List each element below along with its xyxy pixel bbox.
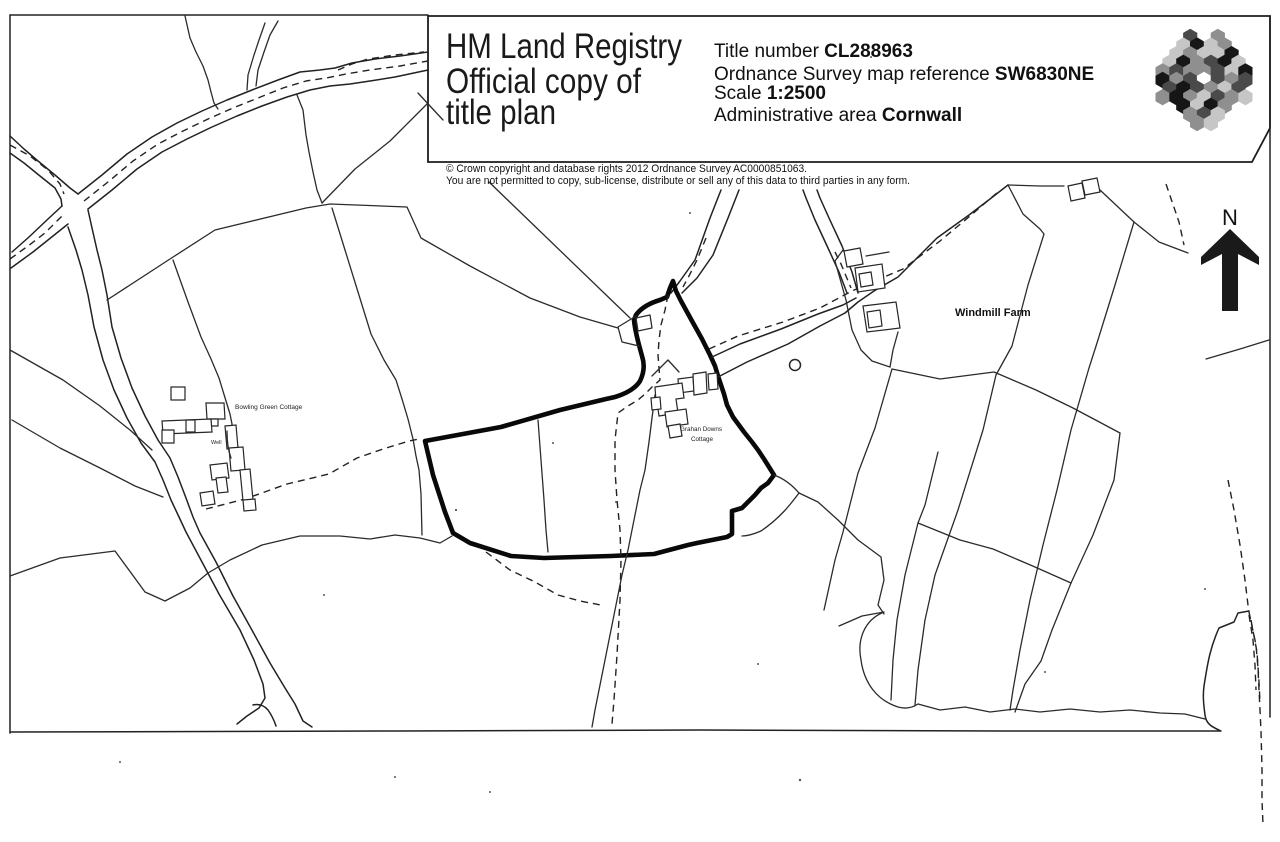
svg-text:Scale 1:2500: Scale 1:2500 [714,83,826,104]
svg-text:Ordnance Survey map reference: Ordnance Survey map reference SW6830NE [714,64,1094,85]
svg-text:HM Land Registry: HM Land Registry [446,27,682,66]
svg-text:Administrative area Cornwall: Administrative area Cornwall [714,105,962,126]
svg-text:Grahan Downs: Grahan Downs [680,426,722,433]
svg-text:Title number CL288963: Title number CL288963 [714,41,913,62]
svg-text:Cottage: Cottage [691,436,714,443]
svg-text:© Crown copyright and database: © Crown copyright and database rights 20… [446,163,807,175]
svg-text:Well: Well [211,440,222,446]
svg-text:N: N [1222,205,1238,230]
svg-text:title plan: title plan [446,93,556,132]
svg-text:You are not permitted to copy,: You are not permitted to copy, sub-licen… [446,175,910,187]
svg-text:Bowling Green Cottage: Bowling Green Cottage [235,404,303,411]
